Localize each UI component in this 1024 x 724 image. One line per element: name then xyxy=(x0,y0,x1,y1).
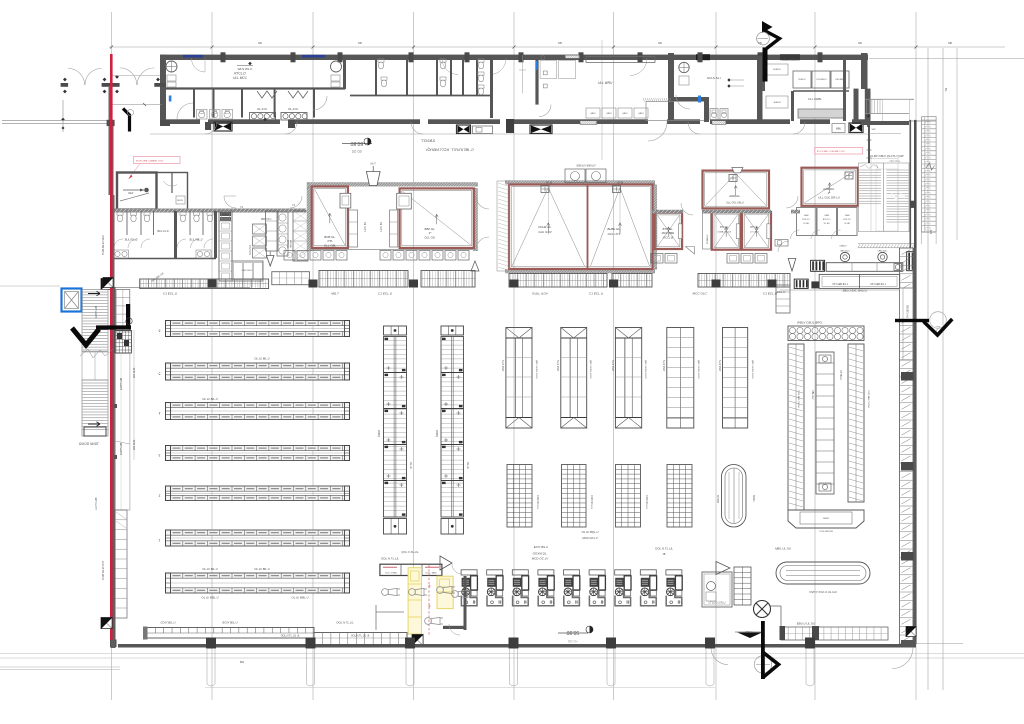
svg-text:RUBLU: RUBLU xyxy=(799,79,806,81)
svg-text:GBM: GBM xyxy=(804,215,809,217)
svg-text:B’ LCL WBL .COB WBL TCVC: B’ LCL WBL .COB WBL TCVC xyxy=(817,151,845,153)
svg-text:T CB OBTU-4C: T CB OBTU-4C xyxy=(870,282,886,284)
svg-text:EOIY BIL.U: EOIY BIL.U xyxy=(223,621,239,625)
svg-text:.CON BBLU: .CON BBLU xyxy=(816,79,827,81)
svg-text:BTV GL: BTV GL xyxy=(720,227,729,229)
svg-text:MCD OC.LV: MCD OC.LV xyxy=(532,557,550,561)
svg-text:WLS WL C: WLS WL C xyxy=(238,67,254,71)
svg-text:BL: BL xyxy=(944,88,948,92)
svg-text:GBM: GBM xyxy=(824,215,829,217)
svg-text:MBU: MBU xyxy=(623,113,628,115)
svg-text:OL.ILI: OL.ILI xyxy=(466,462,469,469)
svg-text:BLIL FBL.D: BLIL FBL.D xyxy=(190,239,203,242)
svg-text:MQ.7: MQ.7 xyxy=(331,292,339,296)
svg-text:QB2’ Λ17B1 ΛVΛU’: QB2’ Λ17B1 ΛVΛU’ xyxy=(535,360,537,380)
svg-text:3: 3 xyxy=(158,453,160,457)
svg-text:12/375-MB: 12/375-MB xyxy=(120,377,123,390)
svg-text:-SUBCE: -SUBCE xyxy=(773,102,781,104)
svg-text:BYP-3°C: BYP-3°C xyxy=(802,219,810,221)
svg-text:OOL.N TL.LI1 .B: OOL.N TL.LI1 .B xyxy=(351,635,370,638)
svg-text:OL.ILI: OL.ILI xyxy=(409,462,412,469)
svg-text:BYP-3°C: BYP-3°C xyxy=(843,219,851,221)
svg-text:MBQ BU: MBQ BU xyxy=(289,240,291,248)
svg-text:MTBBLIV: MTBBLIV xyxy=(707,234,709,244)
svg-text:JJ/J7.5-MB: JJ/J7.5-MB xyxy=(95,497,98,510)
svg-text:ULL GVL UALU: ULL GVL UALU xyxy=(726,202,744,205)
svg-text:AF W: AF W xyxy=(546,182,553,185)
svg-text:WBLV CBLIL BRO.: WBLV CBLIL BRO. xyxy=(797,321,823,325)
svg-text:5: 5 xyxy=(158,372,160,376)
svg-text:QB2’ Λ17B1 ΛVΛU’: QB2’ Λ17B1 ΛVΛU’ xyxy=(751,360,753,380)
svg-text:M6: M6 xyxy=(258,41,262,45)
svg-text:SCLS SL I: SCLS SL I xyxy=(707,76,721,80)
svg-text:ΛT7BΛU: ΛT7BΛU xyxy=(839,370,842,380)
svg-text:OL.ILI MBL.U: OL.ILI MBL.U xyxy=(202,596,220,600)
svg-text:COIV BCLLU: COIV BCLLU xyxy=(590,495,593,509)
svg-text:1: 1 xyxy=(158,538,160,542)
svg-text:M8: M8 xyxy=(948,41,952,45)
svg-text:OL.ILI BIL.U: OL.ILI BIL.U xyxy=(254,567,270,571)
svg-text:BPV GL: BPV GL xyxy=(286,240,288,249)
svg-text:F.CO. BS: F.CO. BS xyxy=(364,222,367,232)
svg-text:NU1’ 1517: NU1’ 1517 xyxy=(662,360,665,372)
svg-text:OOL.N TL.LIL: OOL.N TL.LIL xyxy=(381,557,399,561)
svg-text:RUBLU: RUBLU xyxy=(773,69,781,71)
svg-text:MBIL UL.GU: MBIL UL.GU xyxy=(775,547,792,551)
svg-text:QB2’ Λ17B1 ΛVΛU’: QB2’ Λ17B1 ΛVΛU’ xyxy=(644,360,646,380)
svg-text:BTV GL: BTV GL xyxy=(750,227,759,229)
svg-text:EBU.U UL.GU: EBU.U UL.GU xyxy=(797,622,816,626)
svg-text:OLL OS.: OLL OS. xyxy=(424,235,435,239)
svg-text:COIV BCLLU: COIV BCLLU xyxy=(536,495,539,509)
svg-text:M6: M6 xyxy=(358,41,362,45)
svg-text:2OBQ: 2OBQ xyxy=(435,430,438,437)
svg-text:50M ILIV 30M ILIV: 50M ILIV 30M ILIV xyxy=(576,166,595,168)
svg-text:OOC- MBD: OOC- MBD xyxy=(425,573,437,575)
svg-text:OL.ILI BIL.U: OL.ILI BIL.U xyxy=(202,567,218,571)
svg-text:KCL.U: KCL.U xyxy=(777,290,786,294)
svg-text:ZBC TZ U: ZBC TZ U xyxy=(261,219,272,221)
svg-text:RTCL.D: RTCL.D xyxy=(234,72,246,76)
svg-text:B.MB-6Ω.21 MCC: B.MB-6Ω.21 MCC xyxy=(102,235,105,255)
svg-text:2: 2 xyxy=(158,493,160,497)
svg-text:QB2’ Λ17B1 ΛVΛU’: QB2’ Λ17B1 ΛVΛU’ xyxy=(589,360,591,380)
svg-text:LΓ’LCU LΛTLU: LΓ’LCU LΛTLU xyxy=(709,602,726,605)
svg-text:GUL ILOV: GUL ILOV xyxy=(538,230,552,234)
svg-text:SBT: SBT xyxy=(872,129,877,131)
svg-text:BUZN: BUZN xyxy=(177,200,183,202)
svg-text:OL.ILI BIL.U: OL.ILI BIL.U xyxy=(202,397,218,401)
svg-text:MBU: MBU xyxy=(591,113,596,115)
svg-text:UL BU: UL BU xyxy=(803,223,809,225)
svg-text:MBU: MBU xyxy=(639,113,644,115)
svg-text:UL BU: UL BU xyxy=(824,223,830,225)
svg-text:OLL OBL: OLL OBL xyxy=(324,243,336,247)
svg-text:LV CBL2: LV CBL2 xyxy=(750,232,759,234)
svg-text:C1 ECL.U: C1 ECL.U xyxy=(763,292,778,296)
svg-text:ULL UMBL: ULL UMBL xyxy=(808,97,822,101)
svg-text:NU1’ 1517: NU1’ 1517 xyxy=(501,360,504,372)
svg-text:OCHE GL.: OCHE GL. xyxy=(538,225,552,229)
svg-text:BYP-3°C: BYP-3°C xyxy=(823,219,831,221)
svg-text:50.80: 50.80 xyxy=(567,629,580,635)
svg-text:QLLBV CBLV QLCTU QUP: QLLBV CBLV QLCTU QUP xyxy=(868,154,903,158)
svg-text:BNBU: BNBU xyxy=(752,495,755,502)
svg-text:UL BU: UL BU xyxy=(844,223,850,225)
svg-text:COIV BCLLU: COIV BCLLU xyxy=(645,495,648,509)
svg-text:GBM: GBM xyxy=(845,215,850,217)
svg-text:OL.ILIU: OL.ILIU xyxy=(257,107,268,111)
svg-text:OVCY IOU.U UL.GU: OVCY IOU.U UL.GU xyxy=(809,590,837,594)
svg-text:UBU MULL: UBU MULL xyxy=(889,161,901,163)
svg-text:10865’: 10865’ xyxy=(823,518,830,520)
svg-text:GUL UCT: GUL UCT xyxy=(608,232,621,236)
svg-text:OOL.N TL.LI1 .B: OOL.N TL.LI1 .B xyxy=(281,635,300,638)
svg-text:B01: B01 xyxy=(240,661,245,664)
svg-text:50.80: 50.80 xyxy=(351,140,364,146)
svg-text:OOL.N TL.LIL: OOL.N TL.LIL xyxy=(655,547,673,551)
svg-text:ULL WRU: ULL WRU xyxy=(598,81,613,85)
svg-text:ADR GL.: ADR GL. xyxy=(728,194,741,198)
svg-text:NU1’ 1517: NU1’ 1517 xyxy=(611,360,614,372)
svg-text:OOL.N TL.LIL: OOL.N TL.LIL xyxy=(336,621,354,625)
svg-text:M.CEC WBL CQBB/BL TCVC: M.CEC WBL CQBB/BL TCVC xyxy=(136,161,164,163)
svg-text:BLIL FL.D: BLIL FL.D xyxy=(157,230,168,233)
svg-text:M6: M6 xyxy=(658,41,662,45)
svg-text:2OBQ: 2OBQ xyxy=(377,430,380,437)
svg-text:MCC OLC’: MCC OLC’ xyxy=(693,292,708,296)
svg-text:OL.ILI BIL.U: OL.ILI BIL.U xyxy=(254,357,270,361)
svg-text:ULL MCC: ULL MCC xyxy=(233,76,248,80)
svg-text:UBBL BQLL: UBBL BQLL xyxy=(840,251,850,253)
svg-text:M6: M6 xyxy=(858,41,862,45)
svg-text:UCLL.B: UCLL.B xyxy=(663,235,673,239)
svg-text:OL.ILI BQL.U: OL.ILI BQL.U xyxy=(582,530,600,534)
svg-text:TΛZ1 BBΛ TΛZΛΛ: TΛZ1 BBΛ TΛZΛΛ xyxy=(867,390,869,408)
svg-text:UBL.GU: UBL.GU xyxy=(811,390,814,400)
svg-text:BELU BXL BALLU: BELU BXL BALLU xyxy=(843,289,868,293)
svg-text:220 1130: 220 1130 xyxy=(133,439,136,450)
svg-text:TΛZΛ ΛBN 31B: TΛZΛ ΛBN 31B xyxy=(819,531,833,533)
svg-text:BLIL FLL.D: BLIL FLL.D xyxy=(125,239,138,242)
svg-text:40.00: 40.00 xyxy=(351,149,362,154)
svg-text:C1 ECL.U: C1 ECL.U xyxy=(163,292,178,296)
svg-text:NU1’ 1517: NU1’ 1517 xyxy=(718,360,721,372)
svg-text:AF W: AF W xyxy=(617,182,624,185)
svg-text:COIY BIL.U: COIY BIL.U xyxy=(160,621,176,625)
svg-text:OL.ILIU: OL.ILIU xyxy=(288,107,299,111)
svg-text:UCBA CTCLB: UCBA CTCLB xyxy=(717,231,731,234)
svg-text:UBBL BQLL: UBBL BQLL xyxy=(878,251,888,253)
svg-text:OL.ILI MBL.U: OL.ILI MBL.U xyxy=(292,596,310,600)
svg-text:F.CO. BS: F.CO. BS xyxy=(380,222,383,232)
svg-text:C1 ECL.U: C1 ECL.U xyxy=(378,292,393,296)
svg-text:OOXM QL.: OOXM QL. xyxy=(533,552,548,556)
svg-text:GULL ILOV: GULL ILOV xyxy=(532,292,549,296)
svg-text:74-4.280.80: 74-4.280.80 xyxy=(907,305,910,318)
svg-text:MCD GC.LV: MCD GC.LV xyxy=(582,536,599,540)
svg-text:S’BSCLL: S’BSCLL xyxy=(421,139,436,143)
svg-text:12/375-MB: 12/375-MB xyxy=(95,305,98,318)
svg-text:.Γ.MU: .Γ.MU xyxy=(744,630,752,634)
svg-text:BHBE GL.: BHBE GL. xyxy=(607,227,621,231)
svg-text:ULL HOLU: ULL HOLU xyxy=(783,58,798,62)
svg-text:12/375-MB: 12/375-MB xyxy=(120,442,123,455)
svg-text:+0.00: +0.00 xyxy=(567,639,578,644)
svg-text:QCL.V FL.LIL: QCL.V FL.LIL xyxy=(401,550,419,554)
svg-text:EOIY BIL.U: EOIY BIL.U xyxy=(534,545,549,549)
svg-text:QB2’ Λ17B1 ΛVΛU’: QB2’ Λ17B1 ΛVΛU’ xyxy=(697,360,699,380)
svg-text:T CB OBTU-4C: T CB OBTU-4C xyxy=(832,282,848,284)
svg-text:TΛZ1 BBΛ TΛZΛΛ: TΛZ1 BBΛ TΛZΛΛ xyxy=(797,390,799,408)
svg-text:OBBLV: OBBLV xyxy=(839,245,847,247)
svg-text:6: 6 xyxy=(158,329,160,333)
svg-text:M5: M5 xyxy=(558,41,562,45)
svg-text:JB: JB xyxy=(663,553,666,556)
svg-text:B.MB 5Ω.15 BΓB: B.MB 5Ω.15 BΓB xyxy=(102,561,105,580)
svg-text:B’7’220: B’7’220 xyxy=(716,495,719,504)
svg-text:NU1’ 1517: NU1’ 1517 xyxy=(556,360,559,372)
svg-text:220 1130: 220 1130 xyxy=(133,367,136,378)
svg-text:C’ IBLIU/ULL. KCLLV/BUQI: C’ IBLIU/ULL. KCLLV/BUQI xyxy=(425,148,473,153)
svg-text:ULL GUL DR.LU: ULL GUL DR.LU xyxy=(818,195,840,199)
svg-text:OE1’: OE1’ xyxy=(128,191,134,195)
svg-text:ΛΛ.T: ΛΛ.T xyxy=(370,163,376,166)
svg-text:OOC-T MBL: OOC-T MBL xyxy=(385,573,398,575)
svg-text:MBU: MBU xyxy=(607,113,612,115)
svg-text:C1 ECL.U: C1 ECL.U xyxy=(589,292,604,296)
svg-text:MBU: MBU xyxy=(836,128,842,131)
svg-text:4: 4 xyxy=(158,411,160,415)
svg-text:ATU TZ U: ATU TZ U xyxy=(248,245,251,255)
svg-text:OBU CELL: OBU CELL xyxy=(242,270,254,272)
svg-text:Ω/ΛOƱ MΛƱΓ: Ω/ΛOƱ MΛƱΓ xyxy=(79,442,99,446)
